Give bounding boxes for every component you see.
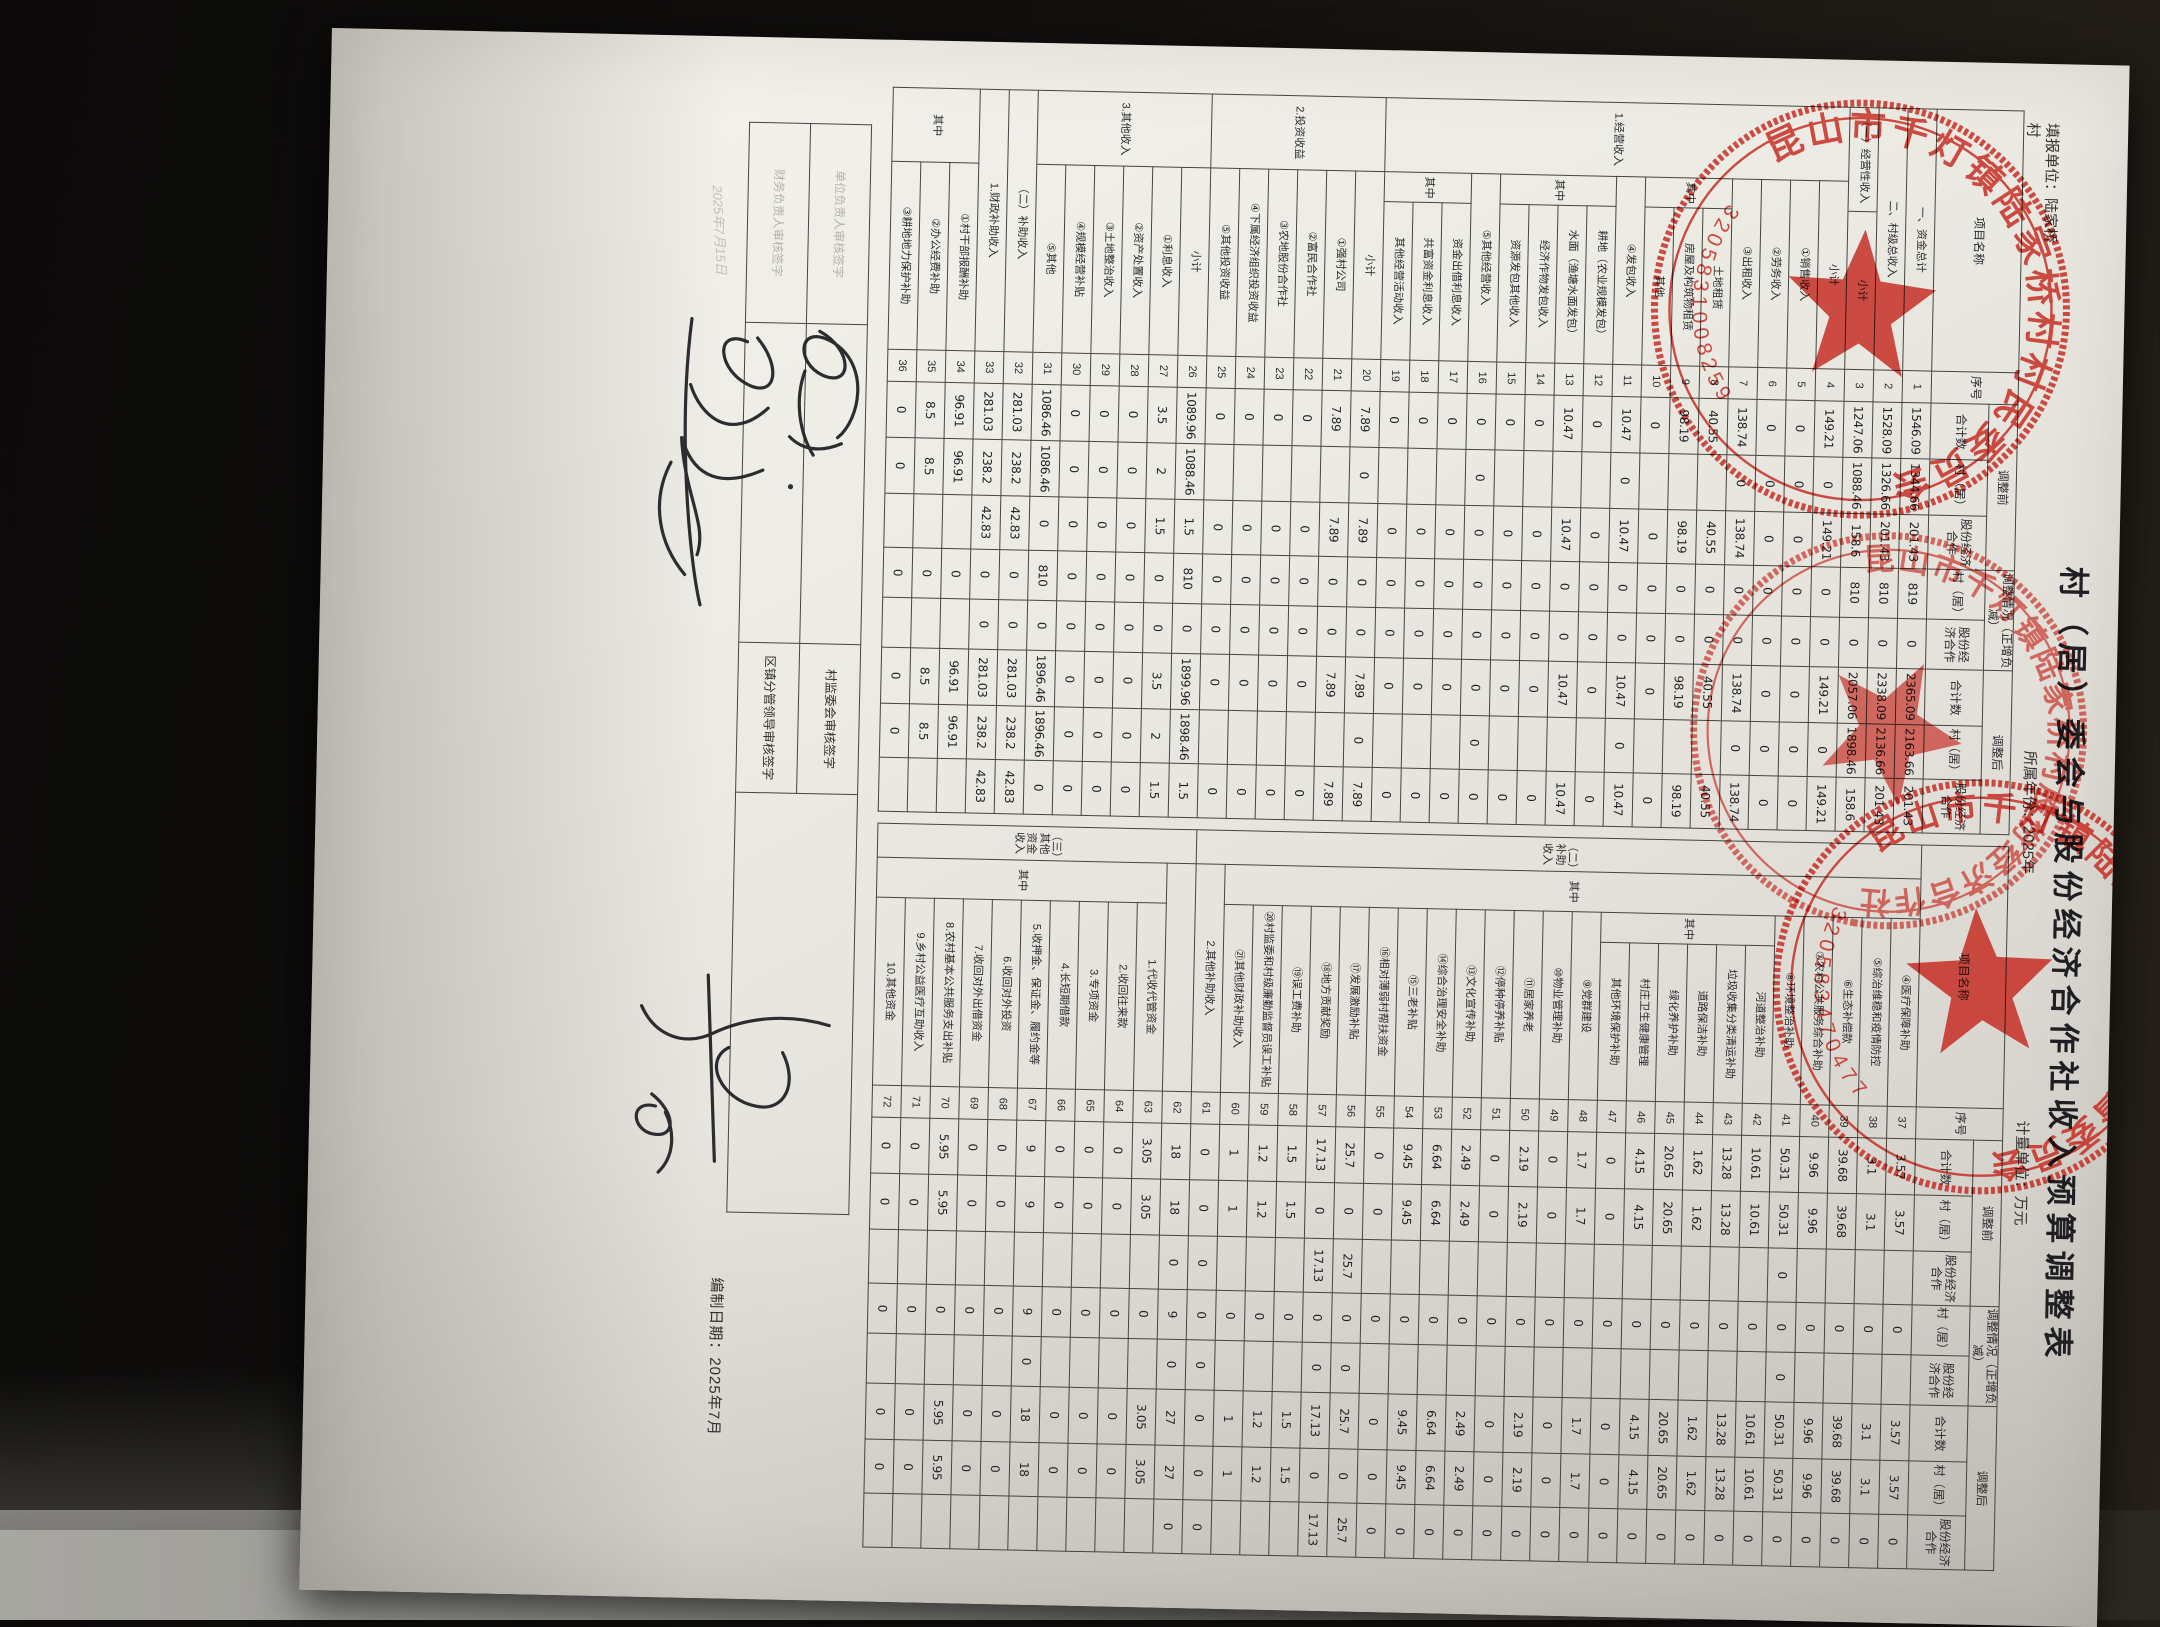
label-cell: ⑤其他投资收益: [1207, 168, 1240, 357]
value-cell: [1565, 1244, 1595, 1299]
value-cell: 1: [1212, 1446, 1242, 1501]
value-cell: [956, 1231, 986, 1286]
value-cell: 0: [1045, 1121, 1075, 1178]
value-cell: 1.5: [1140, 763, 1170, 818]
value-cell: 25.7: [1335, 1127, 1365, 1184]
value-cell: [1291, 446, 1321, 503]
value-cell: 1899.96: [1171, 653, 1201, 710]
value-cell: 0: [1574, 772, 1604, 827]
label-cell: 2.投资收益: [1211, 94, 1387, 172]
value-cell: 5.95: [923, 1384, 953, 1441]
value-cell: [1124, 1498, 1154, 1553]
index-cell: 71: [901, 1086, 931, 1119]
signature-cell-3: [727, 792, 858, 1214]
value-cell: 0: [1401, 768, 1431, 823]
label-cell: 小计: [1352, 171, 1385, 360]
value-cell: 0: [1129, 1289, 1159, 1340]
label-cell: 绿化养护补助: [1656, 943, 1688, 1102]
index-cell: 34: [946, 350, 976, 383]
value-cell: 0: [1820, 1513, 1850, 1568]
value-cell: [942, 494, 972, 549]
value-cell: [1431, 715, 1461, 770]
value-cell: 0: [1577, 662, 1607, 719]
value-cell: 10.61: [1740, 1191, 1770, 1248]
index-cell: 36: [888, 349, 918, 382]
index-cell: 14: [1525, 363, 1555, 396]
value-cell: 0: [952, 1385, 982, 1442]
value-cell: [913, 494, 943, 549]
index-cell: 42: [1742, 1103, 1772, 1136]
value-cell: 1.2: [1241, 1447, 1271, 1502]
value-cell: [1257, 711, 1287, 766]
label-cell: 资金出借利息收入: [1439, 203, 1471, 362]
value-cell: 3.05: [1125, 1444, 1155, 1499]
value-cell: 18: [1010, 1386, 1040, 1443]
value-cell: 0: [1059, 441, 1089, 498]
index-cell: 52: [1452, 1097, 1482, 1130]
value-cell: [954, 1335, 984, 1386]
value-cell: 0: [1853, 1304, 1883, 1355]
label-cell: 共富资金利息收入: [1410, 202, 1442, 361]
index-cell: 23: [1265, 357, 1295, 390]
value-cell: [896, 1334, 926, 1385]
value-cell: [1420, 1241, 1450, 1296]
value-cell: 1: [1213, 1390, 1243, 1447]
value-cell: 0: [1188, 1236, 1218, 1291]
value-cell: 0: [1607, 612, 1637, 663]
value-cell: 0: [1260, 555, 1290, 606]
value-cell: [867, 1333, 897, 1384]
value-cell: [1211, 1500, 1241, 1555]
value-cell: 4.15: [1624, 1189, 1654, 1246]
value-cell: 1.62: [1676, 1456, 1706, 1511]
value-cell: 0: [1492, 560, 1522, 611]
value-cell: 0: [1358, 1393, 1388, 1450]
value-cell: 6.64: [1415, 1451, 1445, 1506]
value-cell: 0: [1153, 1499, 1183, 1554]
value-cell: [937, 758, 967, 813]
index-cell: 28: [1120, 354, 1150, 387]
value-cell: 0: [1084, 651, 1114, 708]
value-cell: 0: [1305, 1182, 1335, 1239]
value-cell: 0: [1493, 506, 1523, 561]
index-cell: 59: [1249, 1093, 1279, 1126]
label-cell: 5.收押金、保证金、履约金等: [1018, 900, 1051, 1089]
value-cell: 1.7: [1566, 1188, 1596, 1245]
value-cell: 0: [1285, 766, 1315, 821]
value-cell: 0: [1521, 561, 1551, 612]
value-cell: 0: [999, 550, 1029, 601]
value-cell: 0: [1318, 556, 1348, 607]
value-cell: 0: [1074, 1121, 1104, 1178]
value-cell: [1489, 716, 1519, 771]
value-cell: 7.89: [1348, 503, 1378, 558]
value-cell: 0: [900, 1118, 930, 1175]
value-cell: 0: [1578, 612, 1608, 663]
value-cell: 0: [1443, 1505, 1473, 1560]
value-cell: 0: [1605, 718, 1635, 773]
value-cell: 0: [969, 599, 999, 650]
value-cell: 1898.46: [1170, 709, 1200, 764]
value-cell: 0: [1111, 762, 1141, 817]
value-cell: 1: [1219, 1124, 1249, 1181]
value-cell: 810: [1173, 553, 1203, 604]
value-cell: [1594, 1244, 1624, 1299]
value-cell: 0: [1405, 558, 1435, 609]
index-cell: 15: [1496, 362, 1526, 395]
value-cell: 3.57: [1880, 1404, 1910, 1461]
value-cell: [1794, 1352, 1824, 1403]
label-cell: 3.专项资金: [1076, 901, 1109, 1090]
index-cell: 49: [1539, 1099, 1569, 1132]
value-cell: 2.49: [1451, 1129, 1481, 1186]
value-cell: [1533, 1347, 1563, 1398]
signature-label-faint-b: 财务负责人审核签字: [745, 122, 810, 323]
value-cell: [1373, 714, 1403, 769]
value-cell: 0: [1364, 1127, 1394, 1184]
value-cell: 0: [1435, 505, 1465, 560]
index-cell: 19: [1381, 360, 1411, 393]
label-cell: 1.代收代管资金: [1134, 903, 1167, 1092]
value-cell: 0: [1733, 1511, 1763, 1566]
value-cell: 2.49: [1445, 1395, 1475, 1452]
value-cell: 0: [1579, 562, 1609, 613]
value-cell: 0: [1328, 1449, 1358, 1504]
signature-table: 单位负责人审核签字 村监委会审核签字 财务负责人审核签字 区镇分管领导审核签字: [726, 122, 872, 1215]
value-cell: 20.65: [1654, 1133, 1684, 1190]
value-cell: 0: [1118, 386, 1148, 443]
value-cell: [1649, 1349, 1679, 1400]
value-cell: 0: [1385, 1504, 1415, 1559]
value-cell: [1362, 1239, 1392, 1294]
label-cell: ⑬文化宣传补助: [1453, 909, 1486, 1098]
value-cell: 10.47: [1548, 661, 1578, 718]
value-cell: 0: [1086, 551, 1116, 602]
value-cell: 0: [986, 1175, 1016, 1232]
value-cell: 0: [1680, 1300, 1710, 1351]
value-cell: 20.65: [1647, 1455, 1677, 1510]
label-cell: ⑯相对薄弱村帮扶资金: [1366, 907, 1399, 1096]
value-cell: 9: [1016, 1120, 1046, 1177]
value-cell: 9: [1013, 1286, 1043, 1337]
value-cell: 8.5: [915, 382, 945, 439]
header-subcolumn: 股份经济合作: [1907, 1515, 1966, 1570]
value-cell: 1.2: [1247, 1181, 1277, 1238]
value-cell: 0: [1768, 1248, 1798, 1303]
header-subcolumn: 股份经济合作: [1910, 1355, 1969, 1406]
value-cell: 7.89: [1345, 657, 1375, 714]
index-cell: 31: [1033, 352, 1063, 385]
index-cell: 53: [1423, 1097, 1453, 1130]
value-cell: 20.65: [1653, 1189, 1683, 1246]
value-cell: 1.62: [1683, 1134, 1713, 1191]
value-cell: [1360, 1343, 1390, 1394]
value-cell: 0: [1608, 562, 1638, 613]
label-cell: 其中: [877, 857, 1168, 903]
value-cell: [1246, 1237, 1276, 1292]
value-cell: 0: [1593, 1298, 1623, 1349]
value-cell: 0: [1068, 1387, 1098, 1444]
value-cell: [1436, 449, 1466, 506]
value-cell: 0: [1477, 1296, 1507, 1347]
value-cell: 0: [1347, 557, 1377, 608]
value-cell: 6.64: [1421, 1185, 1451, 1242]
value-cell: 0: [1538, 1131, 1568, 1188]
value-cell: 0: [1491, 610, 1521, 661]
value-cell: 13.28: [1705, 1457, 1735, 1512]
value-cell: 8.5: [909, 704, 939, 759]
value-cell: 281.03: [997, 650, 1027, 707]
value-cell: 0: [1414, 1505, 1444, 1560]
value-cell: 0: [1055, 651, 1085, 708]
value-cell: 0: [1882, 1304, 1912, 1355]
value-cell: 0: [998, 600, 1028, 651]
value-cell: [1204, 444, 1234, 501]
value-cell: 1.2: [1242, 1391, 1272, 1448]
value-cell: 0: [1651, 1299, 1681, 1350]
value-cell: 0: [1356, 1503, 1386, 1558]
value-cell: 0: [1349, 447, 1379, 504]
value-cell: [1620, 1349, 1650, 1400]
value-cell: [1639, 453, 1669, 510]
index-cell: 65: [1075, 1089, 1105, 1122]
value-cell: 0: [1458, 769, 1488, 824]
value-cell: [1881, 1354, 1911, 1405]
index-cell: 66: [1046, 1089, 1076, 1122]
value-cell: 0: [1203, 500, 1233, 555]
value-cell: [1014, 1232, 1044, 1287]
value-cell: 0: [1060, 385, 1090, 442]
value-cell: [1681, 1246, 1711, 1301]
label-cell: 6.收回对外投资: [989, 900, 1022, 1089]
signature-label-faint-a: 单位负责人审核签字: [806, 124, 871, 325]
value-cell: 18: [1161, 1123, 1191, 1180]
value-cell: 7.89: [1314, 766, 1344, 821]
value-cell: 0: [1012, 1336, 1042, 1387]
index-cell: 47: [1597, 1100, 1627, 1133]
value-cell: 0: [1334, 1183, 1364, 1240]
value-cell: [1402, 714, 1432, 769]
label-cell: 其中: [1500, 174, 1617, 206]
value-cell: 25.7: [1333, 1239, 1363, 1294]
value-cell: [882, 597, 912, 648]
value-cell: 0: [865, 1383, 895, 1440]
value-cell: 0: [1103, 1122, 1133, 1179]
value-cell: 238.2: [1001, 440, 1031, 497]
value-cell: [1215, 1340, 1245, 1391]
value-cell: 2: [1141, 709, 1171, 764]
value-cell: [1591, 1348, 1621, 1399]
value-cell: 0: [1184, 1390, 1214, 1447]
value-cell: 0: [1292, 390, 1322, 447]
header-subcolumn: 村（居）: [1911, 1305, 1970, 1356]
value-cell: [1217, 1236, 1247, 1291]
value-cell: 0: [1766, 1302, 1796, 1353]
value-cell: 25.7: [1327, 1503, 1357, 1558]
value-cell: 3.1: [1850, 1460, 1880, 1515]
value-cell: 1.7: [1560, 1454, 1590, 1509]
value-cell: 3.57: [1879, 1460, 1909, 1515]
value-cell: 1.5: [1169, 763, 1199, 818]
value-cell: 96.91: [944, 382, 974, 439]
value-cell: [1576, 718, 1606, 773]
value-cell: [1478, 1242, 1508, 1297]
value-cell: 3.05: [1126, 1389, 1156, 1446]
value-cell: [1884, 1250, 1914, 1305]
value-cell: 0: [1638, 509, 1668, 564]
index-cell: 17: [1439, 361, 1469, 394]
value-cell: [1476, 1346, 1506, 1397]
label-cell: ⑱地方贡献奖励: [1308, 906, 1341, 1095]
value-cell: 0: [1487, 770, 1517, 825]
index-cell: 43: [1713, 1103, 1743, 1136]
value-cell: 0: [957, 1175, 987, 1232]
value-cell: 0: [1027, 600, 1057, 651]
value-cell: 0: [1232, 500, 1262, 555]
value-cell: 0: [1029, 496, 1059, 551]
value-cell: 0: [1374, 658, 1404, 715]
value-cell: 10.47: [1545, 771, 1575, 826]
label-cell: 7.收回对外出借资金: [960, 899, 993, 1088]
value-cell: 9.96: [1798, 1192, 1828, 1249]
value-cell: [863, 1493, 893, 1548]
value-cell: 50.31: [1763, 1458, 1793, 1513]
label-cell: 其中: [1385, 172, 1473, 204]
value-cell: 39.68: [1821, 1459, 1851, 1514]
value-cell: [869, 1229, 899, 1284]
value-cell: 281.03: [1002, 384, 1032, 441]
value-cell: 4.15: [1619, 1399, 1649, 1456]
value-cell: 0: [1159, 1235, 1189, 1290]
index-cell: 35: [917, 350, 947, 383]
value-cell: 13.28: [1711, 1191, 1741, 1248]
value-cell: 10.61: [1741, 1135, 1771, 1192]
value-cell: [1072, 1233, 1102, 1288]
value-cell: [1494, 450, 1524, 507]
value-cell: 0: [1115, 552, 1145, 603]
index-cell: 67: [1017, 1088, 1047, 1121]
value-cell: [1505, 1346, 1535, 1397]
label-cell: 8.农村基本公共服务支出补贴: [931, 898, 964, 1087]
value-cell: 27: [1155, 1389, 1185, 1446]
index-cell: 69: [959, 1087, 989, 1120]
value-cell: 0: [1596, 1132, 1626, 1189]
label-cell: 资源发包其他收入: [1497, 204, 1529, 363]
value-cell: 0: [1432, 659, 1462, 716]
value-cell: 0: [1516, 771, 1546, 826]
value-cell: 17.13: [1298, 1502, 1328, 1557]
value-cell: 0: [1506, 1296, 1536, 1347]
label-cell: ⑤其他经营收入: [1468, 173, 1501, 362]
value-cell: 0: [1501, 1506, 1531, 1561]
value-cell: [1736, 1351, 1766, 1402]
value-cell: 0: [941, 548, 971, 599]
value-cell: 0: [1157, 1339, 1187, 1390]
value-cell: 1896.46: [1026, 650, 1056, 707]
value-cell: 0: [1096, 1444, 1126, 1499]
value-cell: [1678, 1350, 1708, 1401]
value-cell: [1634, 719, 1664, 774]
value-cell: [979, 1495, 1009, 1550]
value-cell: 0: [1404, 608, 1434, 659]
value-cell: 9.45: [1393, 1128, 1423, 1185]
label-cell: ④规模经营补贴: [1062, 165, 1095, 354]
value-cell: 2: [1146, 443, 1176, 500]
value-cell: 1: [1218, 1180, 1248, 1237]
value-cell: 0: [1144, 553, 1174, 604]
value-cell: 0: [1549, 611, 1579, 662]
value-cell: 0: [1231, 554, 1261, 605]
value-cell: 7.89: [1321, 390, 1351, 447]
value-cell: 0: [1617, 1509, 1647, 1564]
value-cell: [1070, 1337, 1100, 1388]
value-cell: 0: [1172, 603, 1202, 654]
value-cell: 0: [881, 647, 911, 704]
value-cell: 0: [894, 1384, 924, 1441]
value-cell: 2.49: [1444, 1451, 1474, 1506]
index-cell: 25: [1207, 356, 1237, 389]
index-cell: 72: [872, 1085, 902, 1118]
value-cell: 0: [1795, 1302, 1825, 1353]
value-cell: 0: [1056, 601, 1086, 652]
value-cell: 1088.46: [1175, 443, 1205, 500]
value-cell: 7.89: [1343, 767, 1373, 822]
index-cell: 13: [1554, 363, 1584, 396]
value-cell: 6.64: [1416, 1395, 1446, 1452]
value-cell: 238.2: [972, 439, 1002, 496]
label-cell: 1.财政补助收入: [975, 89, 1009, 352]
value-cell: [1233, 445, 1263, 502]
value-cell: 0: [1535, 1297, 1565, 1348]
value-cell: [1269, 1502, 1299, 1557]
value-cell: [879, 757, 909, 812]
value-cell: 1.5: [1276, 1182, 1306, 1239]
value-cell: [908, 758, 938, 813]
value-cell: 0: [1227, 764, 1257, 819]
value-cell: [1623, 1245, 1653, 1300]
value-cell: 0: [1636, 613, 1666, 664]
index-cell: 22: [1294, 358, 1324, 391]
value-cell: 42.83: [971, 495, 1001, 550]
signature-cell-1: [800, 324, 868, 645]
value-cell: 1.5: [1145, 499, 1175, 554]
value-cell: 13.28: [1712, 1135, 1742, 1192]
value-cell: 1.5: [1270, 1448, 1300, 1503]
value-cell: [884, 493, 914, 548]
value-cell: 18: [1009, 1442, 1039, 1497]
value-cell: 10.61: [1734, 1457, 1764, 1512]
value-cell: [1008, 1496, 1038, 1551]
value-cell: 27: [1154, 1445, 1184, 1500]
value-cell: 0: [1058, 497, 1088, 552]
value-cell: 0: [1403, 658, 1433, 715]
value-cell: 0: [1186, 1340, 1216, 1391]
value-cell: 0: [1116, 498, 1146, 553]
value-cell: 0: [1765, 1352, 1795, 1403]
value-cell: 1.5: [1174, 499, 1204, 554]
index-cell: 29: [1091, 353, 1121, 386]
value-cell: 0: [1709, 1301, 1739, 1352]
value-cell: [1101, 1234, 1131, 1289]
value-cell: 2.19: [1509, 1130, 1539, 1187]
value-cell: 7.89: [1316, 656, 1346, 713]
value-cell: [1449, 1241, 1479, 1296]
value-cell: 0: [1665, 614, 1695, 665]
index-cell: 21: [1323, 358, 1353, 391]
value-cell: 0: [1635, 663, 1665, 720]
value-cell: [1739, 1247, 1769, 1302]
label-cell: [1163, 863, 1197, 1092]
